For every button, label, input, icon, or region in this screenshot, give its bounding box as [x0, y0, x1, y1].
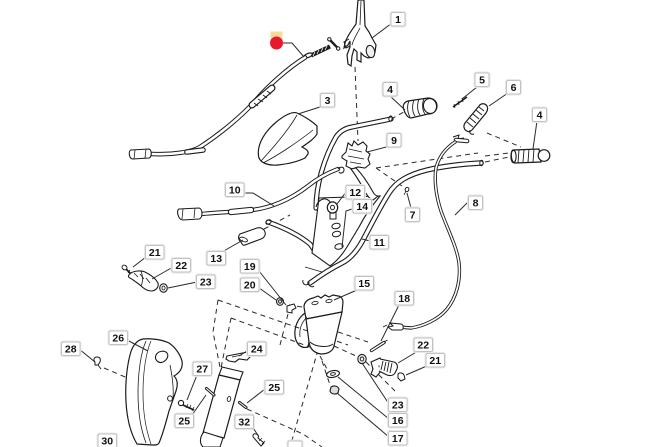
svg-text:4: 4: [537, 110, 543, 122]
svg-text:1: 1: [395, 14, 401, 26]
svg-text:22: 22: [417, 340, 429, 352]
svg-text:18: 18: [398, 293, 410, 305]
svg-text:30: 30: [101, 436, 113, 447]
svg-text:20: 20: [244, 280, 256, 292]
svg-text:25: 25: [178, 416, 190, 428]
svg-text:7: 7: [410, 210, 416, 222]
svg-text:21: 21: [149, 247, 161, 259]
svg-text:23: 23: [200, 277, 212, 289]
svg-text:12: 12: [349, 187, 361, 199]
svg-text:5: 5: [479, 75, 485, 87]
svg-text:21: 21: [429, 355, 441, 367]
svg-text:25: 25: [268, 382, 280, 394]
svg-text:19: 19: [244, 261, 256, 273]
svg-text:27: 27: [196, 364, 208, 376]
svg-text:16: 16: [392, 415, 404, 427]
svg-text:10: 10: [229, 185, 241, 197]
svg-text:13: 13: [210, 253, 222, 265]
svg-text:22: 22: [175, 260, 187, 272]
svg-text:17: 17: [392, 433, 404, 445]
svg-text:6: 6: [511, 82, 517, 94]
svg-text:4: 4: [387, 84, 393, 96]
svg-text:14: 14: [356, 201, 368, 213]
svg-text:28: 28: [65, 344, 77, 356]
svg-text:32: 32: [238, 417, 250, 429]
svg-text:9: 9: [391, 135, 397, 147]
svg-text:15: 15: [358, 278, 370, 290]
svg-text:3: 3: [325, 95, 331, 107]
svg-text:8: 8: [473, 198, 479, 210]
svg-text:24: 24: [251, 344, 263, 356]
svg-text:26: 26: [112, 333, 124, 345]
svg-text:11: 11: [374, 237, 385, 249]
svg-text:23: 23: [392, 400, 404, 412]
